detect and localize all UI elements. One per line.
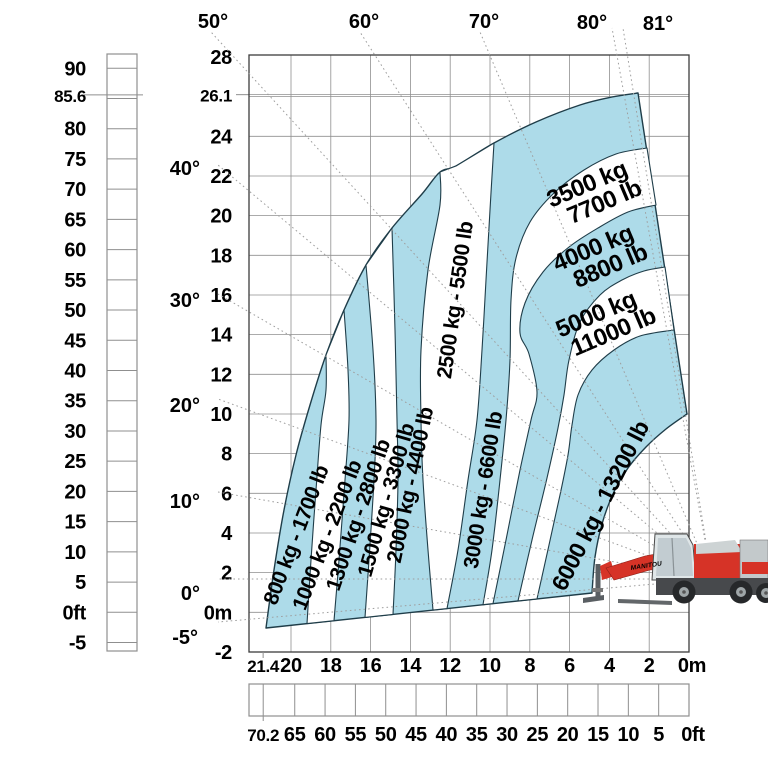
left-feet-label: 60 [64, 240, 86, 262]
bottom-feet-label: 60 [314, 724, 336, 746]
bottom-feet-label: 30 [496, 724, 518, 746]
bottom-feet-label: 15 [587, 724, 609, 746]
bottom-feet-label: 10 [618, 724, 640, 746]
y-axis-meter-label: 26.1 [200, 87, 232, 106]
fork-carriage-icon [592, 588, 603, 592]
angle-label-top: 70° [469, 11, 499, 33]
bottom-feet-label: 20 [557, 724, 579, 746]
y-axis-meter-label: 28 [210, 47, 232, 69]
y-axis-meter-label: 8 [221, 444, 232, 466]
left-feet-label: 0ft [62, 602, 86, 624]
bottom-feet-label: 25 [527, 724, 549, 746]
bottom-feet-label: 55 [345, 724, 367, 746]
x-axis-meter-label: 16 [360, 655, 382, 677]
bottom-feet-label: 45 [405, 724, 427, 746]
x-axis-meter-label: 18 [320, 655, 342, 677]
bottom-feet-label: 35 [466, 724, 488, 746]
bottom-feet-scale-box [249, 684, 689, 716]
left-feet-scale-box [107, 54, 137, 651]
bottom-feet-label: 70.2 [247, 726, 279, 745]
hood-panel [696, 540, 742, 554]
x-axis-meter-label: 6 [564, 655, 575, 677]
x-axis-meter-label: 12 [439, 655, 461, 677]
y-axis-meter-label: 12 [210, 364, 232, 386]
angle-label-left: 30° [170, 290, 200, 312]
left-feet-label: 5 [75, 572, 86, 594]
rear-stripe [742, 562, 768, 574]
angle-label-left: 40° [170, 158, 200, 180]
y-axis-meter-label: 20 [210, 206, 232, 228]
bottom-feet-label: 50 [375, 724, 397, 746]
y-axis-meter-label: 6 [221, 483, 232, 505]
left-feet-label: 30 [64, 421, 86, 443]
x-axis-meter-labels: 21.420181614121086420m [247, 655, 706, 677]
y-axis-meter-labels: 2826.1242220181614121086420m-2 [200, 47, 249, 664]
angle-label-top: 50° [198, 11, 228, 33]
y-axis-meter-label: 0m [204, 602, 232, 624]
y-axis-meter-label: 2 [221, 563, 232, 585]
left-feet-label: 80 [64, 119, 86, 141]
left-feet-label: 25 [64, 451, 86, 473]
left-feet-scale: 9085.680757065605550454035302520151050ft… [54, 54, 143, 655]
y-axis-meter-label: 4 [221, 523, 233, 545]
x-axis-meter-label: 0m [678, 655, 706, 677]
left-feet-label: -5 [69, 633, 86, 655]
angle-label-left: 20° [170, 395, 200, 417]
left-feet-label: 55 [64, 270, 86, 292]
left-feet-label: 90 [64, 58, 86, 80]
bottom-feet-label: 0ft [681, 724, 705, 746]
y-axis-meter-label: -2 [215, 642, 232, 664]
x-axis-meter-label: 10 [479, 655, 501, 677]
left-feet-label: 50 [64, 300, 86, 322]
left-feet-label: 75 [64, 149, 86, 171]
bottom-feet-label: 5 [653, 724, 664, 746]
y-axis-meter-label: 14 [210, 325, 233, 347]
x-axis-meter-label: 20 [280, 655, 302, 677]
y-axis-meter-label: 24 [210, 126, 233, 148]
left-feet-label: 85.6 [54, 87, 86, 106]
cab-window [656, 538, 693, 576]
y-axis-meter-label: 22 [210, 166, 232, 188]
left-feet-label: 15 [64, 512, 86, 534]
wheel-center [764, 591, 768, 595]
wheel-center [739, 590, 743, 594]
left-feet-label: 45 [64, 330, 86, 352]
wheel-center [682, 590, 686, 594]
x-axis-meter-label: 14 [400, 655, 423, 677]
x-axis-meter-label: 8 [524, 655, 535, 677]
y-axis-meter-label: 18 [210, 245, 232, 267]
x-axis-meter-label: 4 [604, 655, 616, 677]
angle-label-top: 60° [349, 11, 379, 33]
left-feet-label: 70 [64, 179, 86, 201]
load-capacity-chart: Telehandler load capacity envelope chart… [0, 0, 768, 768]
left-feet-label: 10 [64, 542, 86, 564]
bottom-feet-scale: 70.265605550454035302520151050ft [247, 684, 705, 746]
angle-label-left: 0° [181, 583, 200, 605]
y-axis-meter-label: 10 [210, 404, 232, 426]
y-axis-meter-label: 16 [210, 285, 232, 307]
x-axis-meter-label: 21.4 [247, 657, 280, 676]
left-feet-label: 65 [64, 209, 86, 231]
angle-label-left: 10° [170, 491, 200, 513]
bottom-feet-label: 65 [284, 724, 306, 746]
angle-label-top: 80° [577, 12, 607, 34]
angle-label-top: 81° [643, 13, 673, 35]
x-axis-meter-label: 2 [644, 655, 655, 677]
load-chart-page: Telehandler load capacity envelope chart… [0, 0, 768, 768]
left-feet-label: 20 [64, 481, 86, 503]
bottom-feet-label: 40 [436, 724, 458, 746]
left-feet-label: 35 [64, 391, 86, 413]
angle-label-left: -5° [172, 627, 198, 649]
fork-mast-icon [596, 564, 601, 600]
left-feet-label: 40 [64, 361, 86, 383]
